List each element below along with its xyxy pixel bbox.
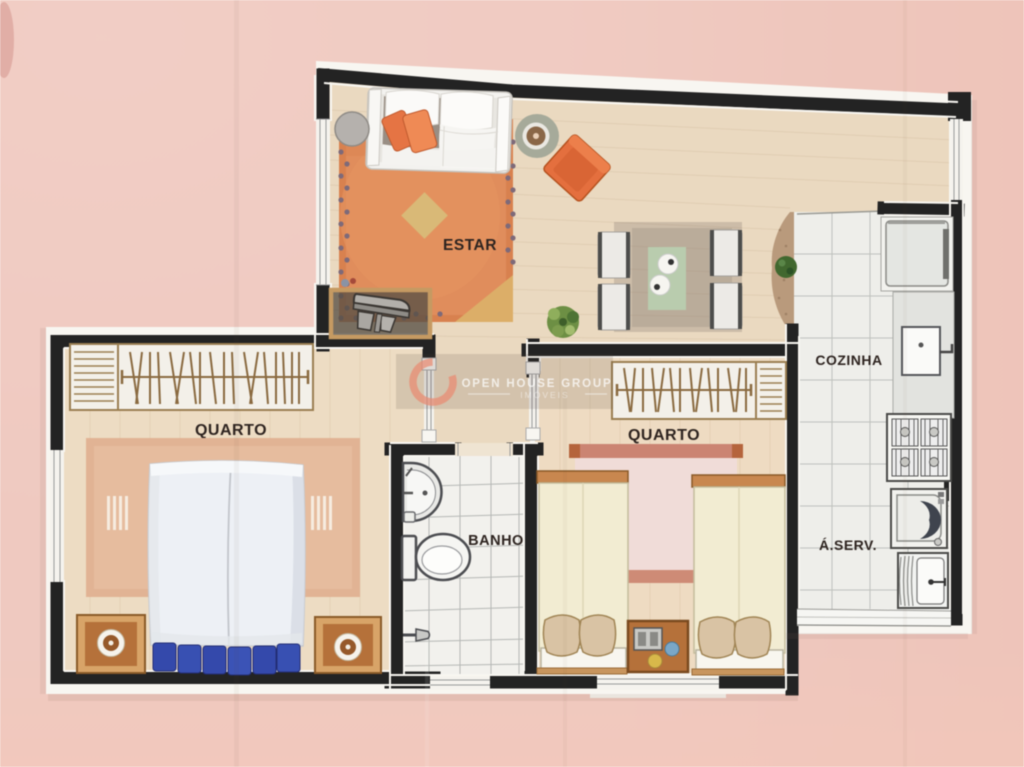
svg-text:COZINHA: COZINHA bbox=[815, 352, 882, 368]
svg-text:QUARTO: QUARTO bbox=[628, 427, 700, 444]
svg-text:BANHO: BANHO bbox=[468, 533, 524, 549]
svg-text:Á.SERV.: Á.SERV. bbox=[819, 537, 877, 553]
svg-text:OPEN HOUSE GROUP: OPEN HOUSE GROUP bbox=[462, 378, 613, 390]
svg-text:QUARTO: QUARTO bbox=[195, 422, 267, 439]
svg-text:IMÓVEIS: IMÓVEIS bbox=[520, 390, 569, 400]
svg-text:ESTAR: ESTAR bbox=[443, 237, 497, 254]
